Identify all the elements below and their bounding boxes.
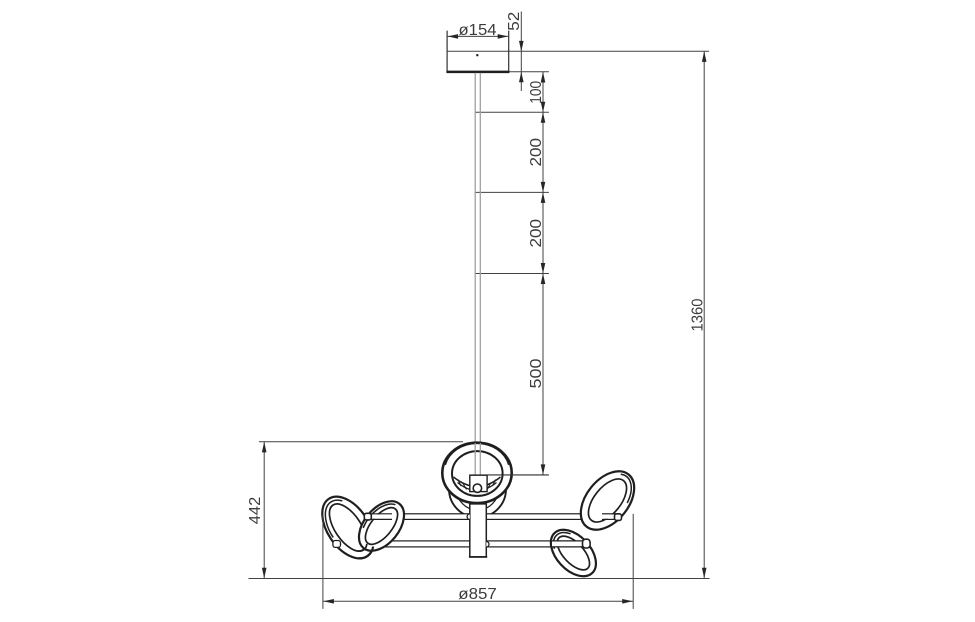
svg-text:52: 52 (506, 12, 523, 31)
svg-text:200: 200 (528, 138, 545, 167)
svg-text:500: 500 (528, 358, 545, 388)
svg-text:200: 200 (528, 219, 545, 248)
svg-text:442: 442 (247, 497, 264, 525)
svg-text:ø857: ø857 (458, 586, 497, 603)
svg-text:100: 100 (528, 81, 545, 104)
svg-text:ø154: ø154 (459, 22, 497, 39)
svg-text:1360: 1360 (689, 298, 706, 331)
